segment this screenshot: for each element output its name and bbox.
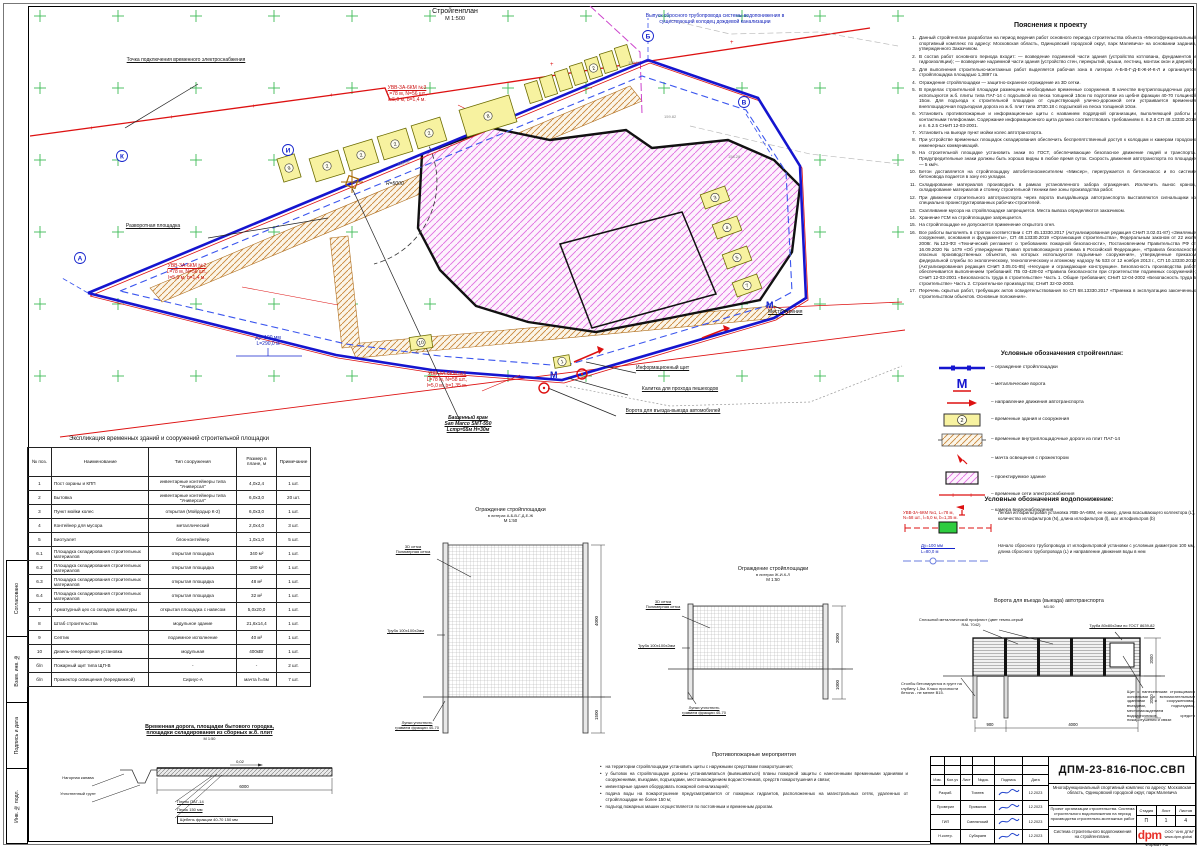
note-number: 10. — [905, 169, 916, 180]
signature-mark — [995, 830, 1023, 844]
svg-text:4000: 4000 — [594, 615, 599, 626]
svg-text:2000: 2000 — [1149, 654, 1154, 664]
note-item: 10. Бетон доставляется на стройплощадку … — [905, 169, 1196, 180]
explication-title: Экспликация временных зданий и сооружени… — [27, 436, 311, 442]
note-item: 13. Скапливание мусора на стройплощадке … — [905, 208, 1196, 214]
label-power-connection: Точка подключения временного электроснаб… — [102, 58, 270, 64]
table-row: 6.1 Площадка складирования строительных … — [28, 547, 311, 561]
signature-row: Н.контр. Субараев 12.2023 — [931, 830, 1048, 844]
sig-role: ГИП — [931, 815, 961, 829]
cell-name: Прожектор освещения (передвижной) — [51, 673, 149, 687]
note-text: При устройстве временных площадок склади… — [919, 137, 1196, 148]
label-tower-crane: Башенный кран San Marco SMT-550 Lстр=55м… — [416, 416, 520, 434]
title-block-main: ДПМ-23-816-ПОС.СВП Многофункциональный с… — [1049, 757, 1195, 843]
cell-size: 1,0х1,0 — [237, 533, 277, 547]
note-text: На строительной площадке установить знак… — [919, 150, 1196, 167]
cell-type: открытая площадка — [149, 547, 237, 561]
svg-text:4000: 4000 — [1068, 722, 1078, 727]
cell-type: блок-контейнер — [149, 533, 237, 547]
fire-measures-title: Противопожарные мероприятия — [600, 752, 908, 758]
temp-road-icon — [933, 432, 991, 448]
cell-note: 1 шт. — [277, 589, 311, 603]
temp-building-icon: 2 — [933, 412, 991, 428]
svg-text:Б: Б — [646, 33, 651, 40]
label-discharge-pipe: Ду=100 мм L=290,0 м — [232, 336, 304, 348]
margin-stamp-approved: Согласовано — [6, 560, 28, 638]
cell-num: 3 — [28, 505, 52, 519]
cell-name: Штаб строительства — [51, 617, 149, 631]
object-name: Многофункциональный спортивный комплекс … — [1049, 784, 1195, 806]
cell-size: 4,0х2,4 — [237, 477, 277, 491]
note-text: Хранение ГСМ на стройплощадке запрещаетс… — [919, 215, 1022, 221]
cell-name: Площадка складирования строительных мате… — [51, 547, 149, 561]
note-number: 15. — [905, 222, 916, 228]
road-soil-label: Уплотненный грунт — [48, 792, 108, 797]
road-ditch-label: Нагорная канава — [48, 776, 108, 781]
table-row: 6.4 Площадка складирования строительных … — [28, 589, 311, 603]
col-header: Примечание — [277, 448, 311, 477]
fire-measures-list: • на территории стройплощадки установить… — [600, 764, 908, 810]
cell-name: Септик — [51, 631, 149, 645]
drawing-sheet: { "plan": { "title": "Стройгенплан", "sc… — [0, 0, 1200, 848]
cell-num: 8 — [28, 617, 52, 631]
sheet-number: 1 — [1157, 816, 1177, 826]
note-item: 11. Складирование материалов производить… — [905, 182, 1196, 193]
note-text: Для выполнения строительно-монтажных раб… — [919, 67, 1196, 78]
floodlight-mast-icon — [933, 452, 991, 466]
plan-scale: М 1:500 — [360, 16, 550, 22]
signature-row: ГИП Смелянский 12.2023 — [931, 815, 1048, 830]
svg-text:1000: 1000 — [835, 679, 840, 690]
note-number: 17. — [905, 288, 916, 299]
note-item: 2. В состав работ основного периода вход… — [905, 54, 1196, 65]
sheets-total: 4 — [1176, 816, 1195, 826]
margin-stamp-label: Взам. инв. № — [14, 654, 20, 687]
note-item: 12. При движении строительного автотранс… — [905, 195, 1196, 206]
table-row: 7 Арматурный цех со складом арматуры отк… — [28, 603, 311, 617]
wellpoint-example-label: УВВ-3А-6КМ №1, L=78 м, N=58 шт., l=5,0 м… — [903, 510, 998, 520]
note-item: 1. Данный стройгенплан разработан на пер… — [905, 35, 1196, 52]
cell-num: б/п — [28, 673, 52, 687]
fire-item: • на территории стройплощадки установить… — [600, 764, 908, 770]
cell-note: 1 шт. — [277, 645, 311, 659]
legend-item-temp-roads: – временные внутриплощадочные дороги из … — [933, 432, 1191, 448]
wellpoint-unit-icon — [903, 520, 993, 534]
sig-role: Н.контр. — [931, 830, 961, 844]
label-uvv1: УВВ-3А-6КМ №1 L=78 м, N=58 шт., l=5,0 м,… — [396, 372, 498, 390]
legend-item-wellpoint-unit: УВВ-3А-6КМ №1, L=78 м, N=58 шт., l=5,0 м… — [903, 510, 1195, 534]
signature-mark — [995, 801, 1023, 815]
table-row: б/п Пожарный щит типа ЩП-В - - 2 шт. — [28, 659, 311, 673]
cell-size: 2,0х4,0 — [237, 519, 277, 533]
cell-size: 48 м² — [237, 575, 277, 589]
note-item: 5. В пределах строительной площадки разм… — [905, 87, 1196, 110]
traffic-direction-icon — [933, 398, 991, 408]
cell-name: Пункт мойки колес — [51, 505, 149, 519]
cell-note: 1 шт. — [277, 603, 311, 617]
cell-type: металлический — [149, 519, 237, 533]
svg-text:+: + — [550, 62, 554, 68]
cell-size: 21,6х14,4 — [237, 617, 277, 631]
note-number: 5. — [905, 87, 916, 110]
margin-stamp-label: Инв. № подл. — [14, 790, 20, 823]
legend-dewatering-title: Условные обозначения водопонижение: — [903, 496, 1195, 503]
note-number: 3. — [905, 67, 916, 78]
fire-item: • инвентарные здания оборудовать пожарно… — [600, 784, 908, 790]
cell-num: 6.4 — [28, 589, 52, 603]
signature-row: Проверил Привалов 12.2023 — [931, 801, 1048, 816]
legend-item-fence: – ограждение стройплощадки — [933, 364, 1191, 372]
cell-note: 1 шт. — [277, 547, 311, 561]
svg-text:А: А — [78, 255, 83, 262]
cell-note: 20 шт. — [277, 491, 311, 505]
cell-name: Пожарный щит типа ЩП-В — [51, 659, 149, 673]
explication-table-section: Экспликация временных зданий и сооружени… — [27, 436, 311, 687]
plan-title: Стройгенплан М 1:500 — [360, 8, 550, 23]
note-text: Скапливание мусора на стройплощадке запр… — [919, 208, 1125, 214]
fire-item: • у бытовок на стройплощадке должны уста… — [600, 771, 908, 783]
cell-type: инвентарные контейнеры типа "Универсал" — [149, 491, 237, 505]
note-number: 8. — [905, 137, 916, 148]
fence2-mesh-label: 3D сетка Полимерная сетка — [638, 600, 688, 609]
note-text: Данный стройгенплан разработан на период… — [919, 35, 1196, 52]
cell-note: 3 шт. — [277, 519, 311, 533]
cell-type: подземное исполнение — [149, 631, 237, 645]
sig-role: Проверил — [931, 801, 961, 815]
signature-mark — [995, 815, 1023, 829]
document-number: ДПМ-23-816-ПОС.СВП — [1049, 757, 1195, 784]
table-row: 8 Штаб строительства модульное здание 21… — [28, 617, 311, 631]
table-row: 6.2 Площадка складирования строительных … — [28, 561, 311, 575]
cell-name: Контейнер для мусора — [51, 519, 149, 533]
sig-name: Привалов — [961, 801, 995, 815]
gate-profile-label: Сплошной металлический профлист (цвет те… — [917, 618, 1025, 627]
fire-item-text: у бытовок на стройплощадке должны устана… — [606, 771, 908, 783]
margin-stamp-inv-number: Инв. № подл. — [6, 768, 28, 844]
table-row: 3 Пункт мойки колес открытая (Мойдодыр К… — [28, 505, 311, 519]
cell-size: 5,0х20,0 — [237, 603, 277, 617]
company-name: ООО "АНК ДПМ" www.dpm.global — [1165, 830, 1195, 840]
sig-date: 12.2023 — [1023, 801, 1048, 815]
road-detail: Временная дорога, площадки бытового горо… — [62, 724, 357, 844]
cell-size: 6,0х3,0 — [237, 491, 277, 505]
sig-name: Смелянский — [961, 815, 995, 829]
cell-note: 1 шт. — [277, 631, 311, 645]
label-info-board: Информационный щит — [636, 366, 751, 372]
note-text: В состав работ основного периода входит:… — [919, 54, 1196, 65]
legend-item-discharge-pipe: Ду=100 мм L=80,0 м Начало сбросного труб… — [903, 543, 1195, 566]
col-header: Наименование — [51, 448, 149, 477]
cell-name: Площадка складирования строительных мате… — [51, 589, 149, 603]
label-vehicle-gates: Ворота для въезда-выезда автомобилей — [610, 409, 736, 415]
cell-size: мачта h=5м — [237, 673, 277, 687]
metal-gate-icon: М — [933, 376, 991, 394]
table-row: б/п Прожектор освещения (передвижной) Си… — [28, 673, 311, 687]
legend-item-projected-building: – проектируемое здание — [933, 470, 1191, 486]
svg-text:1500: 1500 — [594, 709, 599, 720]
svg-text:900: 900 — [987, 722, 995, 727]
note-text: Складирование материалов производить в р… — [919, 182, 1196, 193]
table-row: 2 Бытовка инвентарные контейнеры типа "У… — [28, 491, 311, 505]
sig-name: Субараев — [961, 830, 995, 844]
fire-measures: Противопожарные мероприятия • на террито… — [600, 752, 908, 811]
sig-date: 12.2023 — [1023, 786, 1048, 800]
cell-size: 40 м³ — [237, 631, 277, 645]
fence1-canvas: 4000 1500 — [393, 537, 633, 745]
cell-name: Бытовка — [51, 491, 149, 505]
table-row: 1 Пост охраны и КПП инвентарные контейне… — [28, 477, 311, 491]
cell-type: открытая площадка с навесом — [149, 603, 237, 617]
explication-table: № поз. Наименование Тип сооружения Разме… — [27, 447, 311, 687]
gate-board-label: Щит с нанесенными строящимися основными … — [1127, 690, 1195, 723]
svg-text:2000: 2000 — [835, 632, 840, 643]
plan-title-text: Стройгенплан — [360, 8, 550, 16]
project-notes: Пояснения к проекту 1. Данный стройгенпл… — [905, 22, 1196, 301]
cell-type: открытая площадка — [149, 561, 237, 575]
note-number: 2. — [905, 54, 916, 65]
note-number: 11. — [905, 182, 916, 193]
cell-name: Площадка складирования строительных мате… — [51, 561, 149, 575]
cell-type: открытая площадка — [149, 575, 237, 589]
gate-detail-title: Ворота для въезда (выезда) автотранспорт… — [919, 598, 1179, 609]
cell-num: 10 — [28, 645, 52, 659]
notes-list: 1. Данный стройгенплан разработан на пер… — [905, 35, 1196, 299]
fence1-title: Ограждение стройплощадки в литерах А-Б-В… — [418, 507, 603, 523]
legend-dewatering: Условные обозначения водопонижение: УВВ-… — [903, 496, 1195, 576]
gate-detail: Ворота для въезда (выезда) автотранспорт… — [903, 598, 1195, 754]
title-block: Изм. Кол.уч Лист №док. Подпись Дата Разр… — [930, 756, 1196, 844]
cell-note: 1 шт. — [277, 561, 311, 575]
cell-name: Пост охраны и КПП — [51, 477, 149, 491]
note-text: Установить на выезде пункт мойки колес а… — [919, 130, 1043, 136]
col-header: Тип сооружения — [149, 448, 237, 477]
cell-size: - — [237, 659, 277, 673]
note-item: 15. На стройплощадке не допускается прим… — [905, 222, 1196, 228]
site-plan: 22222834579110АБВИКММ158.04158.67159.821… — [30, 6, 905, 453]
label-smoking-area: Место курения — [768, 310, 848, 316]
cell-num: 7 — [28, 603, 52, 617]
cell-num: 6.2 — [28, 561, 52, 575]
road-detail-canvas: 0,02 6000 — [62, 756, 357, 842]
legend-text: Начало сбросного трубопровода от иглофил… — [998, 543, 1195, 566]
road-detail-title: Временная дорога, площадки бытового горо… — [72, 724, 347, 741]
label-uvv3: УВВ-3А-6КМ №3 L=78 м, N=56 шт., l=5,0 м,… — [356, 86, 458, 104]
cell-size: 340 м² — [237, 547, 277, 561]
margin-stamp-label: Подпись и дата — [14, 717, 20, 754]
fence2-pipe-label: Труба 100х100х2мм — [638, 644, 686, 649]
fire-item-text: подъезд пожарных машин осуществляется по… — [606, 804, 774, 810]
stage-table: Стадия Лист Листов П 1 4 — [1137, 806, 1195, 826]
cell-type: модульная — [149, 645, 237, 659]
note-number: 9. — [905, 150, 916, 167]
note-item: 8. При устройстве временных площадок скл… — [905, 137, 1196, 148]
signature-row: Разраб. Тихеев 12.2023 — [931, 786, 1048, 801]
sig-date: 12.2023 — [1023, 815, 1048, 829]
table-row: 9 Септик подземное исполнение 40 м³ 1 шт… — [28, 631, 311, 645]
cell-type: модульное здание — [149, 617, 237, 631]
project-name: Проект организации строительства. Систем… — [1049, 806, 1137, 826]
cell-name: Биотуалет — [51, 533, 149, 547]
note-number: 6. — [905, 111, 916, 128]
title-block-signatures: Изм. Кол.уч Лист №док. Подпись Дата Разр… — [931, 757, 1049, 843]
note-number: 1. — [905, 35, 916, 52]
road-layer2-label: Песок 150 мм — [177, 808, 297, 813]
svg-text:И: И — [286, 147, 291, 154]
note-item: 17. Перечень скрытых работ, требующих ак… — [905, 288, 1196, 299]
legend-text: Легкая иглофильтровая установка УВВ-3А-6… — [998, 510, 1195, 534]
cell-size: 180 м² — [237, 561, 277, 575]
cell-note: 1 шт. — [277, 617, 311, 631]
fence2-pit-label: Лунки уплотнить гравием фракции 40-70 — [662, 706, 746, 715]
note-text: В пределах строительной площадки размеще… — [919, 87, 1196, 110]
col-header: Размер в плане, м — [237, 448, 277, 477]
legend-siteplan-title: Условные обозначения стройгенплан: — [933, 350, 1191, 357]
cell-note: 7 шт. — [277, 673, 311, 687]
table-header-row: № поз. Наименование Тип сооружения Разме… — [28, 448, 311, 477]
note-number: 13. — [905, 208, 916, 214]
cell-type: Сириус-А — [149, 673, 237, 687]
cell-num: б/п — [28, 659, 52, 673]
legend-item-direction: – направление движения автотранспорта — [933, 398, 1191, 408]
table-row: 4 Контейнер для мусора металлический 2,0… — [28, 519, 311, 533]
note-item: 14. Хранение ГСМ на стройплощадке запрещ… — [905, 215, 1196, 221]
fire-item-text: на территории стройплощадки установить щ… — [606, 764, 793, 770]
fire-item: • подъезд пожарных машин осуществляется … — [600, 804, 908, 810]
svg-text:6000: 6000 — [239, 784, 249, 789]
fence-detail-2: Ограждение стройплощадки в литерах Ж-И-К… — [648, 562, 928, 747]
note-text: Установить противопожарные и информацион… — [919, 111, 1196, 128]
cell-note: 1 шт. — [277, 477, 311, 491]
note-text: Все работы выполнять в строгом соответст… — [919, 230, 1196, 287]
cell-size: 6,0х3,0 — [237, 505, 277, 519]
label-discharge-outlet: Выпуск сбросного трубопровода системы во… — [644, 14, 786, 26]
cell-num: 5 — [28, 533, 52, 547]
cell-name: Площадка складирования строительных мате… — [51, 575, 149, 589]
cell-type: - — [149, 659, 237, 673]
note-item: 9. На строительной площадке установить з… — [905, 150, 1196, 167]
note-number: 14. — [905, 215, 916, 221]
fence2-canvas: 2000 1000 — [648, 596, 928, 714]
fence1-mesh-label: 3D сетка Полимерная сетка — [387, 545, 439, 554]
margin-stamp-label: Согласовано — [14, 583, 20, 614]
svg-text:158.28: 158.28 — [728, 154, 741, 159]
signature-mark — [995, 786, 1023, 800]
cell-type: открытая площадка — [149, 589, 237, 603]
label-crane-radius: R=5000 — [386, 182, 404, 188]
note-text: Перечень скрытых работ, требующих актов … — [919, 288, 1196, 299]
road-layer3-label: Щебень фракции 40-70 150 мм — [177, 816, 273, 824]
svg-text:+: + — [170, 115, 174, 121]
stage-value: П — [1137, 816, 1157, 826]
note-text: Ограждение стройплощадки — защитно-охран… — [919, 80, 1081, 86]
svg-text:В: В — [742, 99, 747, 106]
label-uvv2: УВВ-3А-6КМ №2 L=78 м, N=56 шт., l=5,0 м,… — [136, 264, 238, 282]
note-number: 7. — [905, 130, 916, 136]
road-layer1-label: Плиты ПАГ-14 — [177, 800, 297, 805]
svg-text:158.67: 158.67 — [628, 60, 641, 65]
svg-text:2: 2 — [960, 418, 963, 424]
note-item: 7. Установить на выезде пункт мойки коле… — [905, 130, 1196, 136]
fire-item: • подача воды на пожаротушение предусмат… — [600, 791, 908, 803]
cell-num: 1 — [28, 477, 52, 491]
svg-text:+: + — [252, 104, 256, 110]
cell-num: 4 — [28, 519, 52, 533]
sig-role: Разраб. — [931, 786, 961, 800]
svg-text:М: М — [550, 370, 558, 380]
projected-building-icon — [933, 470, 991, 486]
pipe-example-label: Ду=100 мм L=80,0 м — [921, 543, 998, 554]
note-item: 4. Ограждение стройплощадки — защитно-ох… — [905, 80, 1196, 86]
gate-pipe-label: Труба 80х80х2мм по ГОСТ 8639-82 — [1081, 624, 1163, 629]
table-row: 10 Дизель-генераторная установка модульн… — [28, 645, 311, 659]
cell-size: 400кВт — [237, 645, 277, 659]
svg-text:+: + — [90, 126, 94, 132]
note-item: 3. Для выполнения строительно-монтажных … — [905, 67, 1196, 78]
fence-line-icon — [933, 364, 991, 372]
table-row: 5 Биотуалет блок-контейнер 1,0х1,0 5 шт. — [28, 533, 311, 547]
format-label: Формат А1 — [1145, 842, 1168, 847]
sig-name: Тихеев — [961, 786, 995, 800]
cell-type: открытая (Мойдодыр К-2) — [149, 505, 237, 519]
note-number: 16. — [905, 230, 916, 287]
sheet-name: Система строительного водопонижения на с… — [1049, 827, 1137, 843]
fire-item-text: подача воды на пожаротушение предусматри… — [606, 791, 908, 803]
signature-header-row: Изм. Кол.уч Лист №док. Подпись Дата — [931, 775, 1048, 786]
cell-note: 2 шт. — [277, 659, 311, 673]
label-pedestrian-wicket: Калитка для прохода пешеходов — [624, 387, 736, 393]
fence-detail-1: Ограждение стройплощадки в литерах А-Б-В… — [393, 503, 633, 748]
svg-text:М: М — [957, 376, 968, 391]
notes-title: Пояснения к проекту — [905, 22, 1196, 29]
note-text: Бетон доставляется на стройплощадку авто… — [919, 169, 1196, 180]
legend-item-temp-buildings: 2 – временные здания и сооружения — [933, 412, 1191, 428]
svg-text:10: 10 — [418, 340, 425, 347]
cell-num: 6.3 — [28, 575, 52, 589]
cell-num: 6.1 — [28, 547, 52, 561]
legend-item-gates: М – металлические ворота — [933, 376, 1191, 394]
cell-name: Арматурный цех со складом арматуры — [51, 603, 149, 617]
table-row: 6.3 Площадка складирования строительных … — [28, 575, 311, 589]
svg-text:0,02: 0,02 — [236, 759, 245, 764]
company-logo: dpm ООО "АНК ДПМ" www.dpm.global — [1137, 827, 1195, 843]
cell-note: 5 шт. — [277, 533, 311, 547]
logo-text: dpm — [1138, 828, 1162, 842]
cell-name: Дизель-генераторная установка — [51, 645, 149, 659]
margin-stamp-sign-date: Подпись и дата — [6, 702, 28, 770]
fence1-pipe-label: Труба 100х100х2мм — [387, 629, 435, 634]
fence2-title: Ограждение стройплощадки в литерах Ж-И-К… — [678, 566, 868, 582]
cell-note: 1 шт. — [277, 575, 311, 589]
cell-note: 1 шт. — [277, 505, 311, 519]
margin-stamp-replace-inv: Взам. инв. № — [6, 636, 28, 704]
note-number: 4. — [905, 80, 916, 86]
svg-text:+: + — [330, 93, 334, 99]
note-item: 16. Все работы выполнять в строгом соотв… — [905, 230, 1196, 287]
fence1-pit-label: Лунки уплотнить гравием фракции 40-70 — [385, 721, 449, 730]
note-item: 6. Установить противопожарные и информац… — [905, 111, 1196, 128]
note-text: При движении строительного автотранспорт… — [919, 195, 1196, 206]
note-number: 12. — [905, 195, 916, 206]
cell-num: 9 — [28, 631, 52, 645]
sig-date: 12.2023 — [1023, 830, 1048, 844]
cell-type: инвентарные контейнеры типа "Универсал" — [149, 477, 237, 491]
svg-text:К: К — [120, 153, 124, 160]
cell-num: 2 — [28, 491, 52, 505]
col-header: № поз. — [28, 448, 52, 477]
legend-item-light-mast: – мачта освещения с прожектором — [933, 452, 1191, 466]
note-text: На стройплощадке не допускается применен… — [919, 222, 1055, 228]
label-turnaround: Разворотная площадка — [98, 224, 208, 230]
